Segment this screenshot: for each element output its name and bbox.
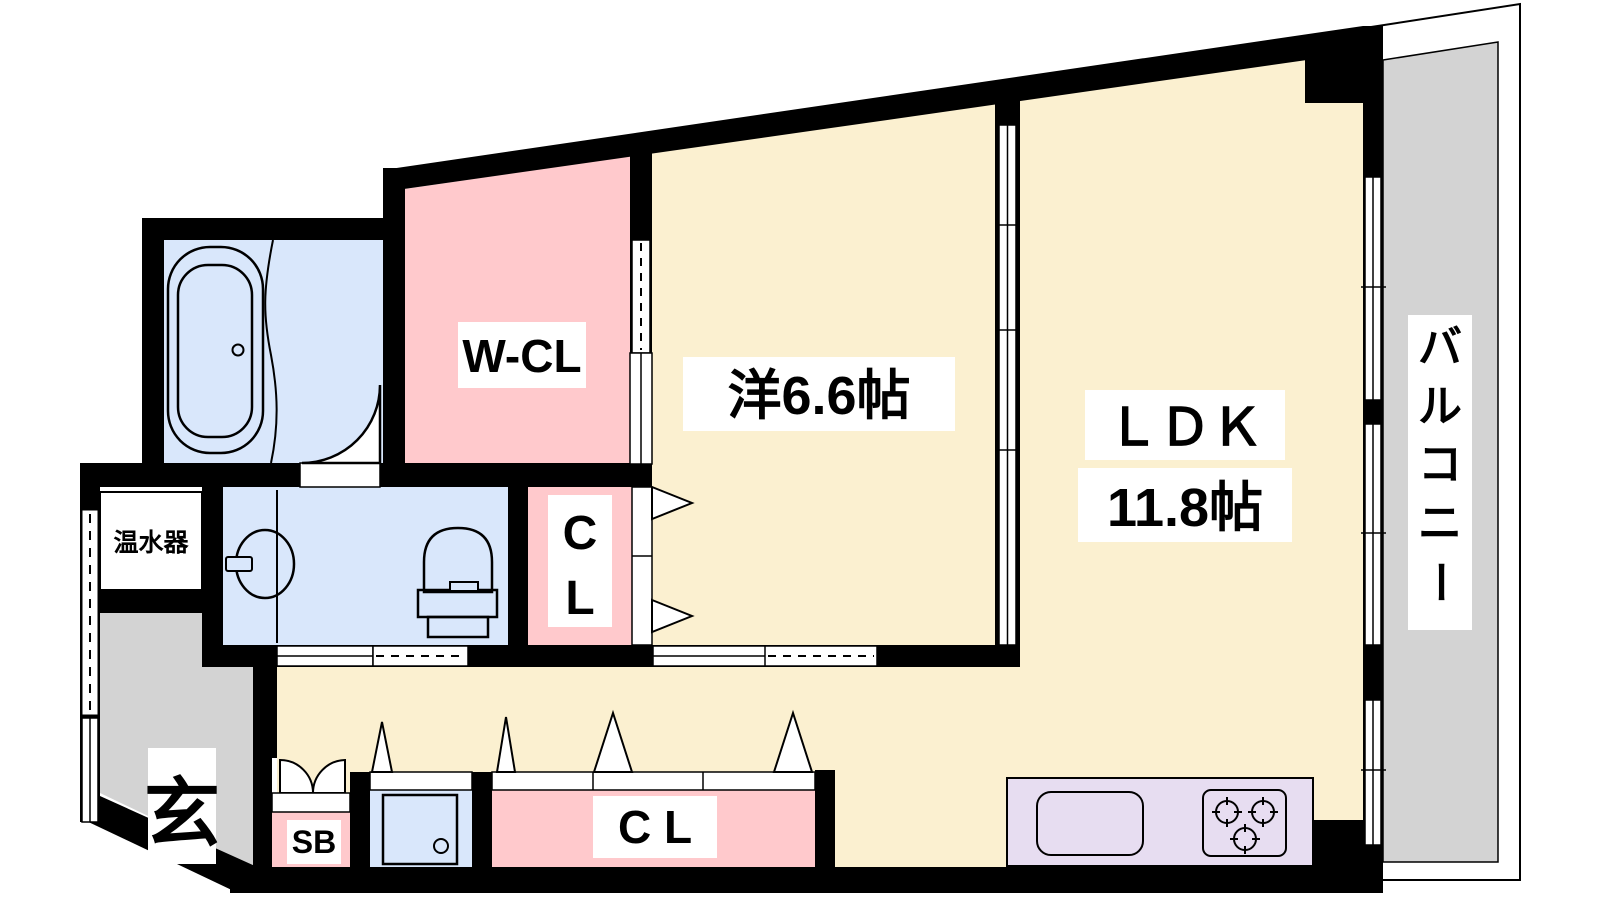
wall-bottom: [230, 867, 1383, 893]
ldk-size-label: 11.8帖: [1107, 478, 1263, 538]
wall-washroom-left: [202, 487, 223, 667]
closet-upper-label-l: L: [565, 572, 594, 625]
shoe-box-shelf: [272, 793, 350, 812]
kitchen-counter: [1007, 778, 1313, 866]
western-room-sliding-door: [653, 646, 877, 666]
balcony-label-char: ル: [1418, 382, 1462, 431]
door-panel: [632, 487, 652, 645]
wall-wcl-left: [383, 168, 405, 487]
wall-entrance-b: [253, 758, 272, 867]
wall-washroom-right: [508, 487, 528, 645]
entrance-label: 玄: [144, 772, 220, 857]
wall-sb-right: [350, 772, 370, 867]
toilet-tank-tab: [450, 582, 478, 591]
closet-lower-label: C L: [618, 801, 692, 853]
door-track: [370, 772, 472, 790]
wall-heater-bottom: [80, 590, 223, 613]
washroom-floor: [223, 487, 508, 645]
balcony-label-char: バ: [1418, 323, 1462, 372]
bathroom-floor: [164, 240, 383, 463]
floor-plan: W-CL 洋6.6帖 ＬＤＫ 11.8帖 C L C L SB 温水器 玄 バ …: [0, 0, 1600, 900]
wall-cl-right: [815, 770, 835, 867]
closet-upper-label-c: C: [563, 507, 598, 560]
basin-tap: [226, 557, 252, 571]
balcony-label-char: ニ: [1418, 499, 1462, 548]
wall-laundry-right: [472, 772, 492, 867]
wall-bath-top: [142, 218, 405, 240]
ldk-label: ＬＤＫ: [1107, 399, 1263, 457]
balcony-label-char: ー: [1415, 560, 1464, 604]
balcony-label-char: コ: [1418, 440, 1462, 489]
washroom-doorway: [277, 646, 468, 666]
walk-in-closet-floor: [405, 156, 630, 487]
floor-plan-page: W-CL 洋6.6帖 ＬＤＫ 11.8帖 C L C L SB 温水器 玄 バ …: [0, 0, 1600, 900]
water-heater-label: 温水器: [113, 529, 189, 557]
walk-in-closet-label: W-CL: [462, 330, 581, 382]
wall-bath-left: [142, 218, 164, 480]
door-track: [492, 772, 815, 790]
shoe-box-label: SB: [292, 824, 336, 860]
wcl-doors: [630, 240, 652, 464]
room-partition-sliding: [995, 125, 1020, 645]
western-room-label: 洋6.6帖: [727, 366, 910, 426]
wall-entrance-a: [253, 667, 277, 758]
entrance-side-openings: [82, 510, 98, 822]
bath-door-threshold: [300, 463, 380, 487]
